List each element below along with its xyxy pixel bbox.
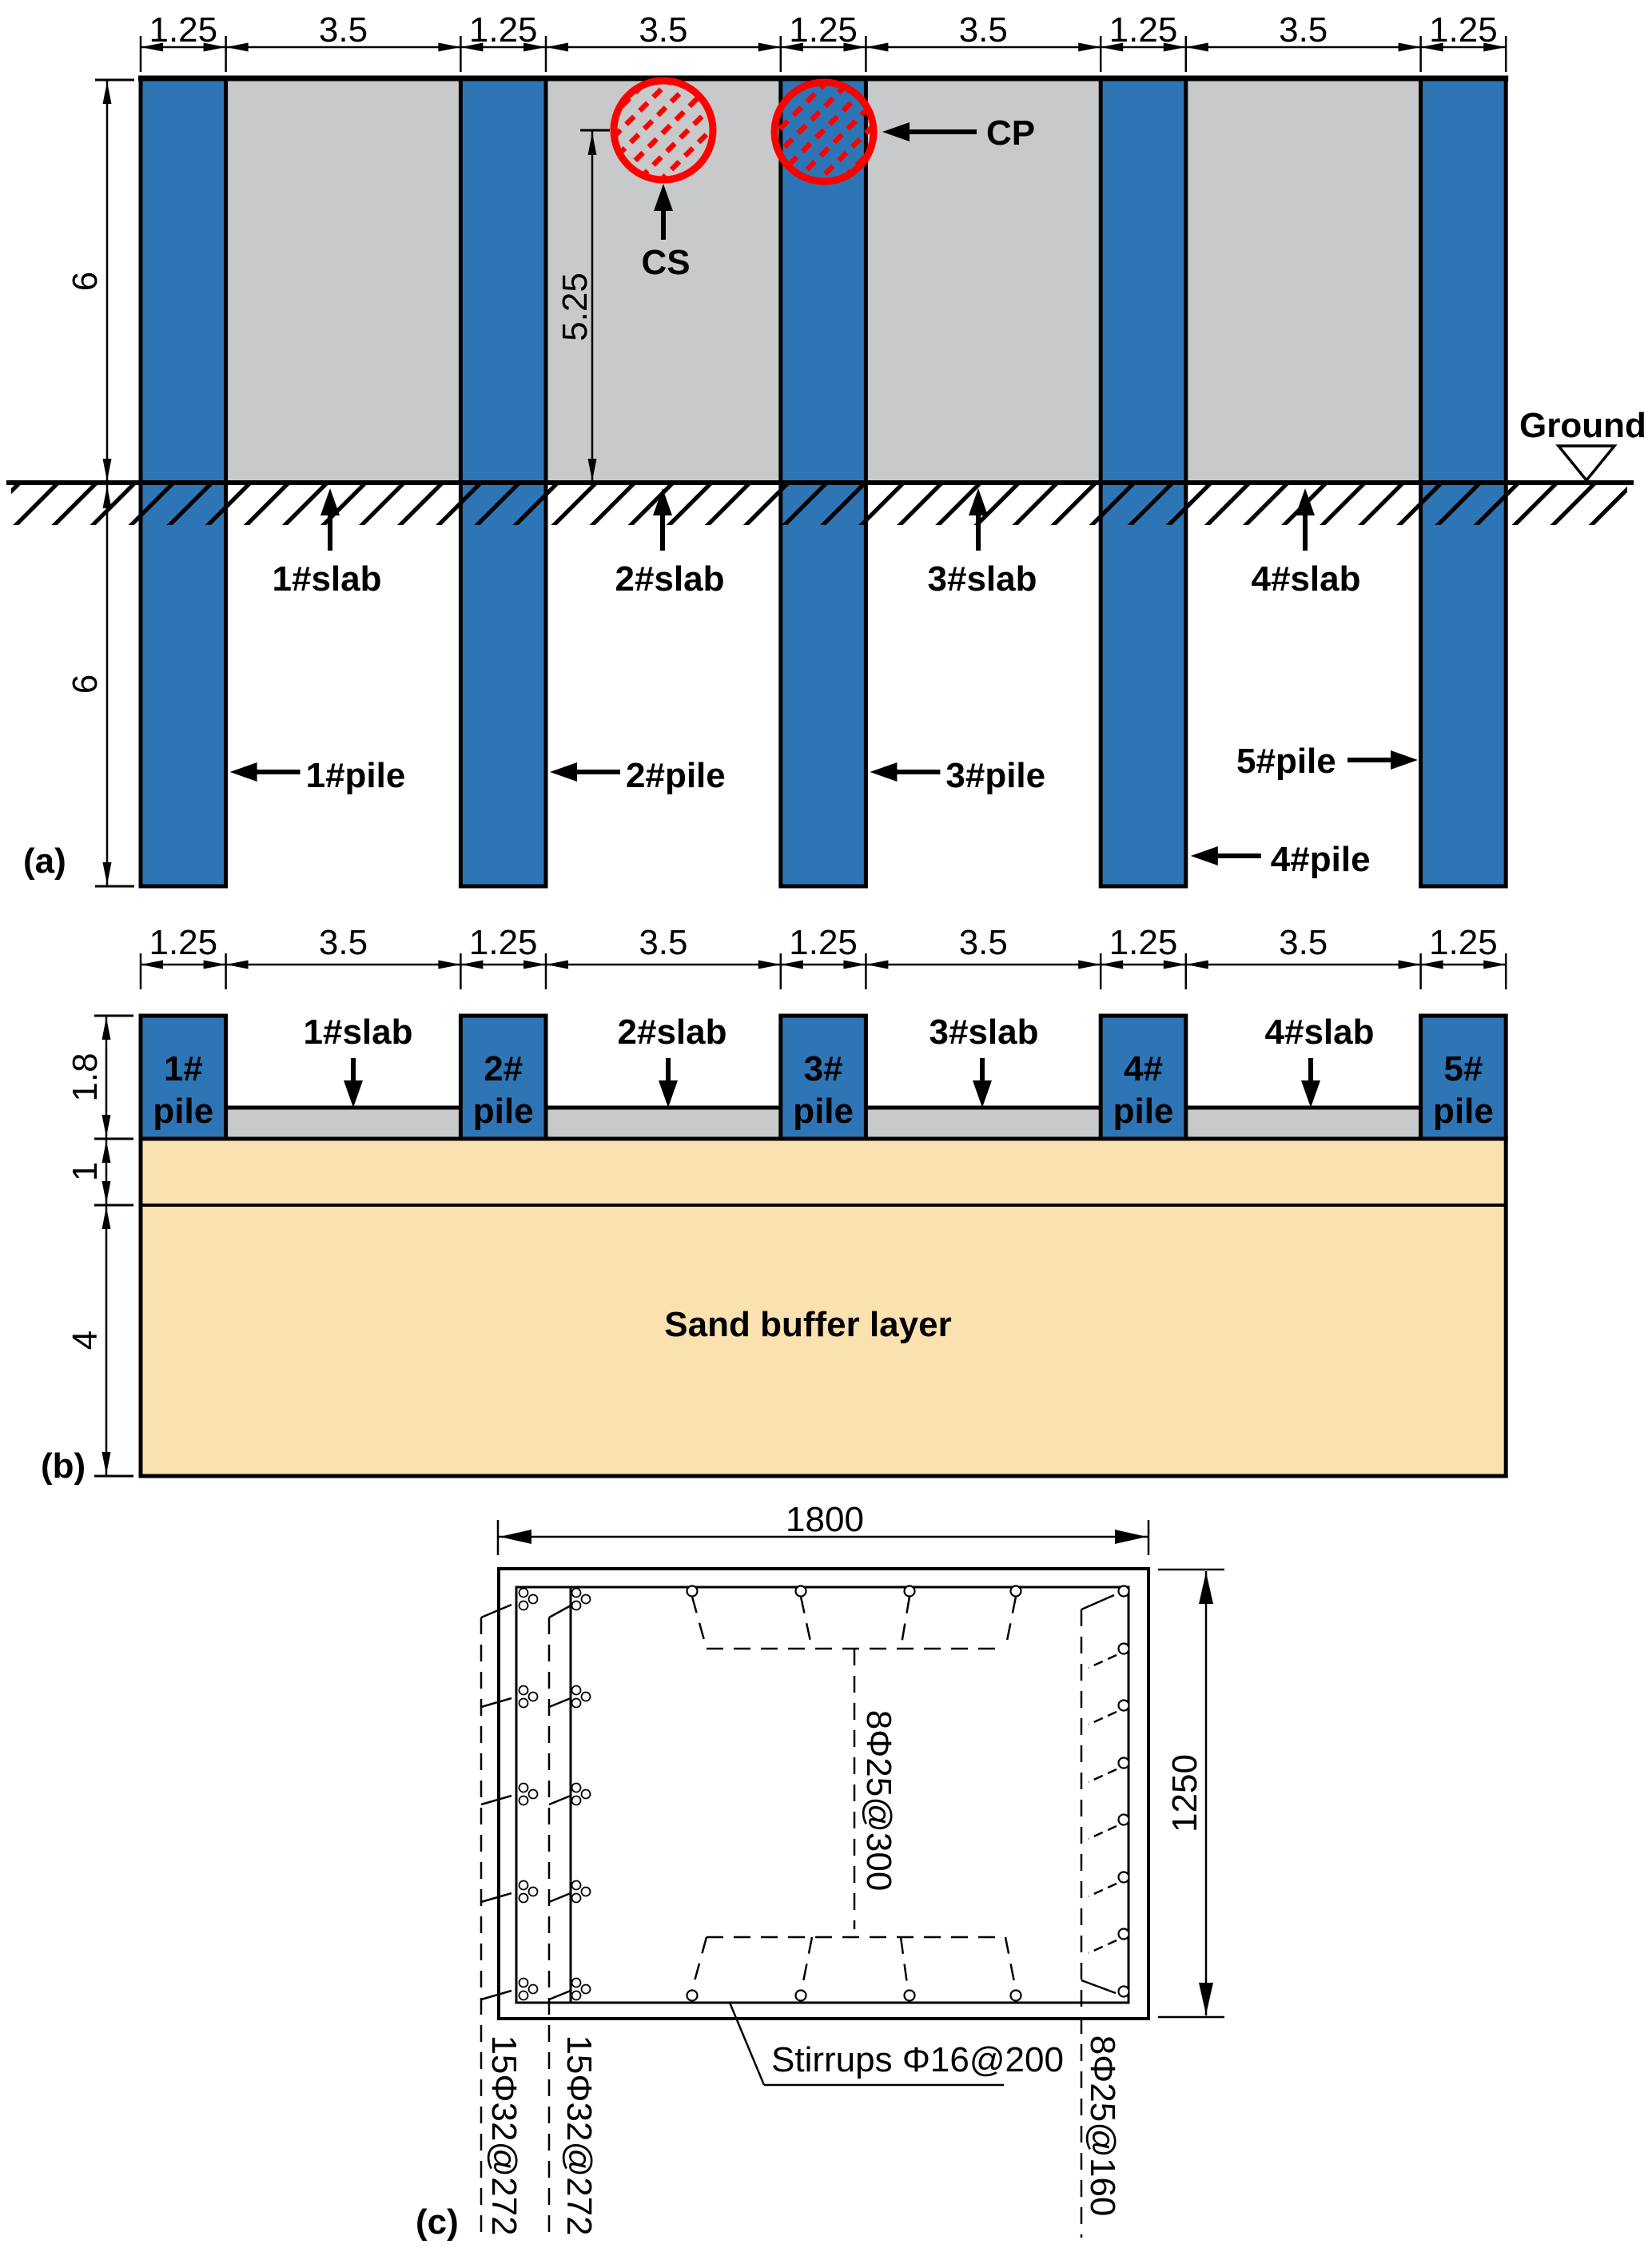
svg-text:1.25: 1.25 xyxy=(789,10,858,50)
svg-text:15Φ32@272: 15Φ32@272 xyxy=(484,2035,523,2235)
svg-text:CP: CP xyxy=(986,113,1035,153)
svg-text:2#: 2# xyxy=(484,1049,523,1088)
svg-text:pile: pile xyxy=(153,1092,213,1131)
svg-text:8Φ25@300: 8Φ25@300 xyxy=(859,1710,898,1892)
svg-text:3.5: 3.5 xyxy=(959,10,1008,50)
svg-text:3.5: 3.5 xyxy=(639,10,687,50)
svg-text:3.5: 3.5 xyxy=(1279,10,1328,50)
svg-text:1.25: 1.25 xyxy=(149,923,217,962)
svg-text:1800: 1800 xyxy=(786,1500,864,1539)
svg-text:2#pile: 2#pile xyxy=(626,756,726,795)
svg-text:5#pile: 5#pile xyxy=(1236,742,1336,781)
svg-text:1#slab: 1#slab xyxy=(304,1013,413,1052)
svg-text:3#slab: 3#slab xyxy=(928,559,1037,599)
svg-text:pile: pile xyxy=(473,1092,534,1131)
svg-text:1: 1 xyxy=(66,1162,105,1181)
svg-text:8Φ25@160: 8Φ25@160 xyxy=(1083,2035,1122,2217)
svg-text:2#slab: 2#slab xyxy=(615,559,725,599)
svg-text:6: 6 xyxy=(66,272,105,291)
svg-text:1.25: 1.25 xyxy=(149,10,217,50)
svg-text:4#pile: 4#pile xyxy=(1271,840,1371,879)
svg-text:4#: 4# xyxy=(1124,1049,1163,1088)
svg-text:1#slab: 1#slab xyxy=(273,559,382,599)
svg-text:(c): (c) xyxy=(416,2202,459,2242)
svg-text:Ground: Ground xyxy=(1519,406,1646,445)
svg-text:pile: pile xyxy=(1113,1092,1174,1131)
svg-text:CS: CS xyxy=(641,243,690,282)
svg-text:15Φ32@272: 15Φ32@272 xyxy=(559,2035,599,2235)
svg-text:4#slab: 4#slab xyxy=(1252,559,1361,599)
svg-text:1.25: 1.25 xyxy=(1109,10,1178,50)
svg-text:1#pile: 1#pile xyxy=(306,756,406,795)
svg-text:3#pile: 3#pile xyxy=(945,756,1045,795)
svg-text:3.5: 3.5 xyxy=(959,923,1008,962)
svg-text:3.5: 3.5 xyxy=(639,923,687,962)
svg-text:1.25: 1.25 xyxy=(789,923,858,962)
svg-text:6: 6 xyxy=(66,674,105,694)
svg-text:Stirrups Φ16@200: Stirrups Φ16@200 xyxy=(771,2040,1064,2079)
svg-text:3#: 3# xyxy=(804,1049,843,1088)
svg-text:5#: 5# xyxy=(1443,1049,1483,1088)
svg-text:1.25: 1.25 xyxy=(469,923,538,962)
svg-text:1.25: 1.25 xyxy=(1429,10,1498,50)
svg-text:4: 4 xyxy=(66,1331,105,1350)
svg-text:3.5: 3.5 xyxy=(319,10,368,50)
svg-text:(b): (b) xyxy=(41,1446,86,1486)
svg-text:(a): (a) xyxy=(23,842,66,881)
svg-text:1.25: 1.25 xyxy=(1109,923,1178,962)
svg-text:3.5: 3.5 xyxy=(1279,923,1328,962)
svg-text:pile: pile xyxy=(793,1092,854,1131)
svg-text:1#: 1# xyxy=(164,1049,203,1088)
svg-text:1250: 1250 xyxy=(1165,1754,1204,1832)
svg-text:3.5: 3.5 xyxy=(319,923,368,962)
svg-text:4#slab: 4#slab xyxy=(1265,1013,1375,1052)
svg-text:5.25: 5.25 xyxy=(555,273,595,341)
svg-text:3#slab: 3#slab xyxy=(929,1013,1039,1052)
svg-text:1.8: 1.8 xyxy=(66,1052,105,1101)
svg-text:1.25: 1.25 xyxy=(469,10,538,50)
svg-text:1.25: 1.25 xyxy=(1429,923,1498,962)
svg-text:Sand buffer layer: Sand buffer layer xyxy=(664,1305,951,1344)
svg-text:pile: pile xyxy=(1433,1092,1494,1131)
svg-text:2#slab: 2#slab xyxy=(618,1013,727,1052)
